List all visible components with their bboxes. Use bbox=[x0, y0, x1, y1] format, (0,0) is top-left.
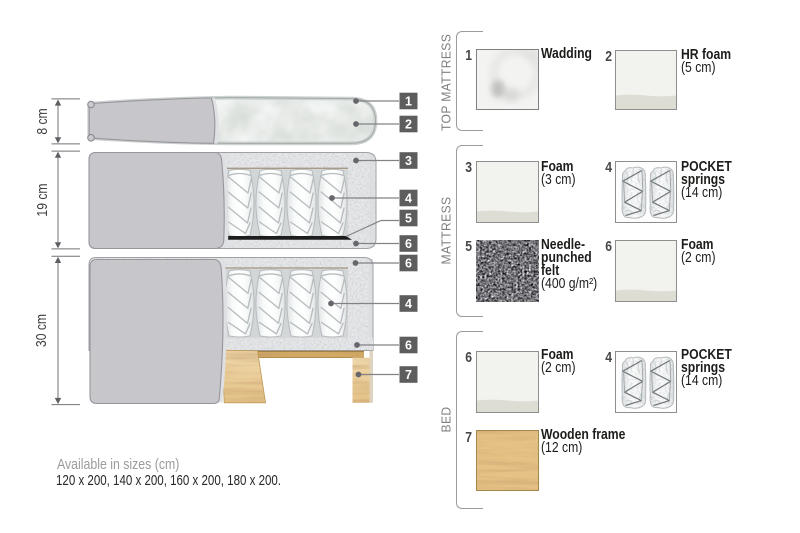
svg-text:4: 4 bbox=[405, 192, 412, 206]
svg-text:2: 2 bbox=[405, 118, 412, 132]
svg-text:5: 5 bbox=[405, 212, 412, 226]
svg-text:1: 1 bbox=[405, 95, 412, 109]
svg-text:30 cm: 30 cm bbox=[33, 314, 49, 347]
svg-text:6: 6 bbox=[405, 257, 412, 271]
svg-text:7: 7 bbox=[405, 368, 412, 382]
svg-text:6: 6 bbox=[405, 339, 412, 353]
svg-text:8 cm: 8 cm bbox=[34, 108, 50, 134]
svg-text:19 cm: 19 cm bbox=[34, 183, 50, 216]
svg-text:6: 6 bbox=[405, 237, 412, 251]
svg-text:3: 3 bbox=[405, 154, 412, 168]
svg-text:4: 4 bbox=[405, 297, 412, 311]
